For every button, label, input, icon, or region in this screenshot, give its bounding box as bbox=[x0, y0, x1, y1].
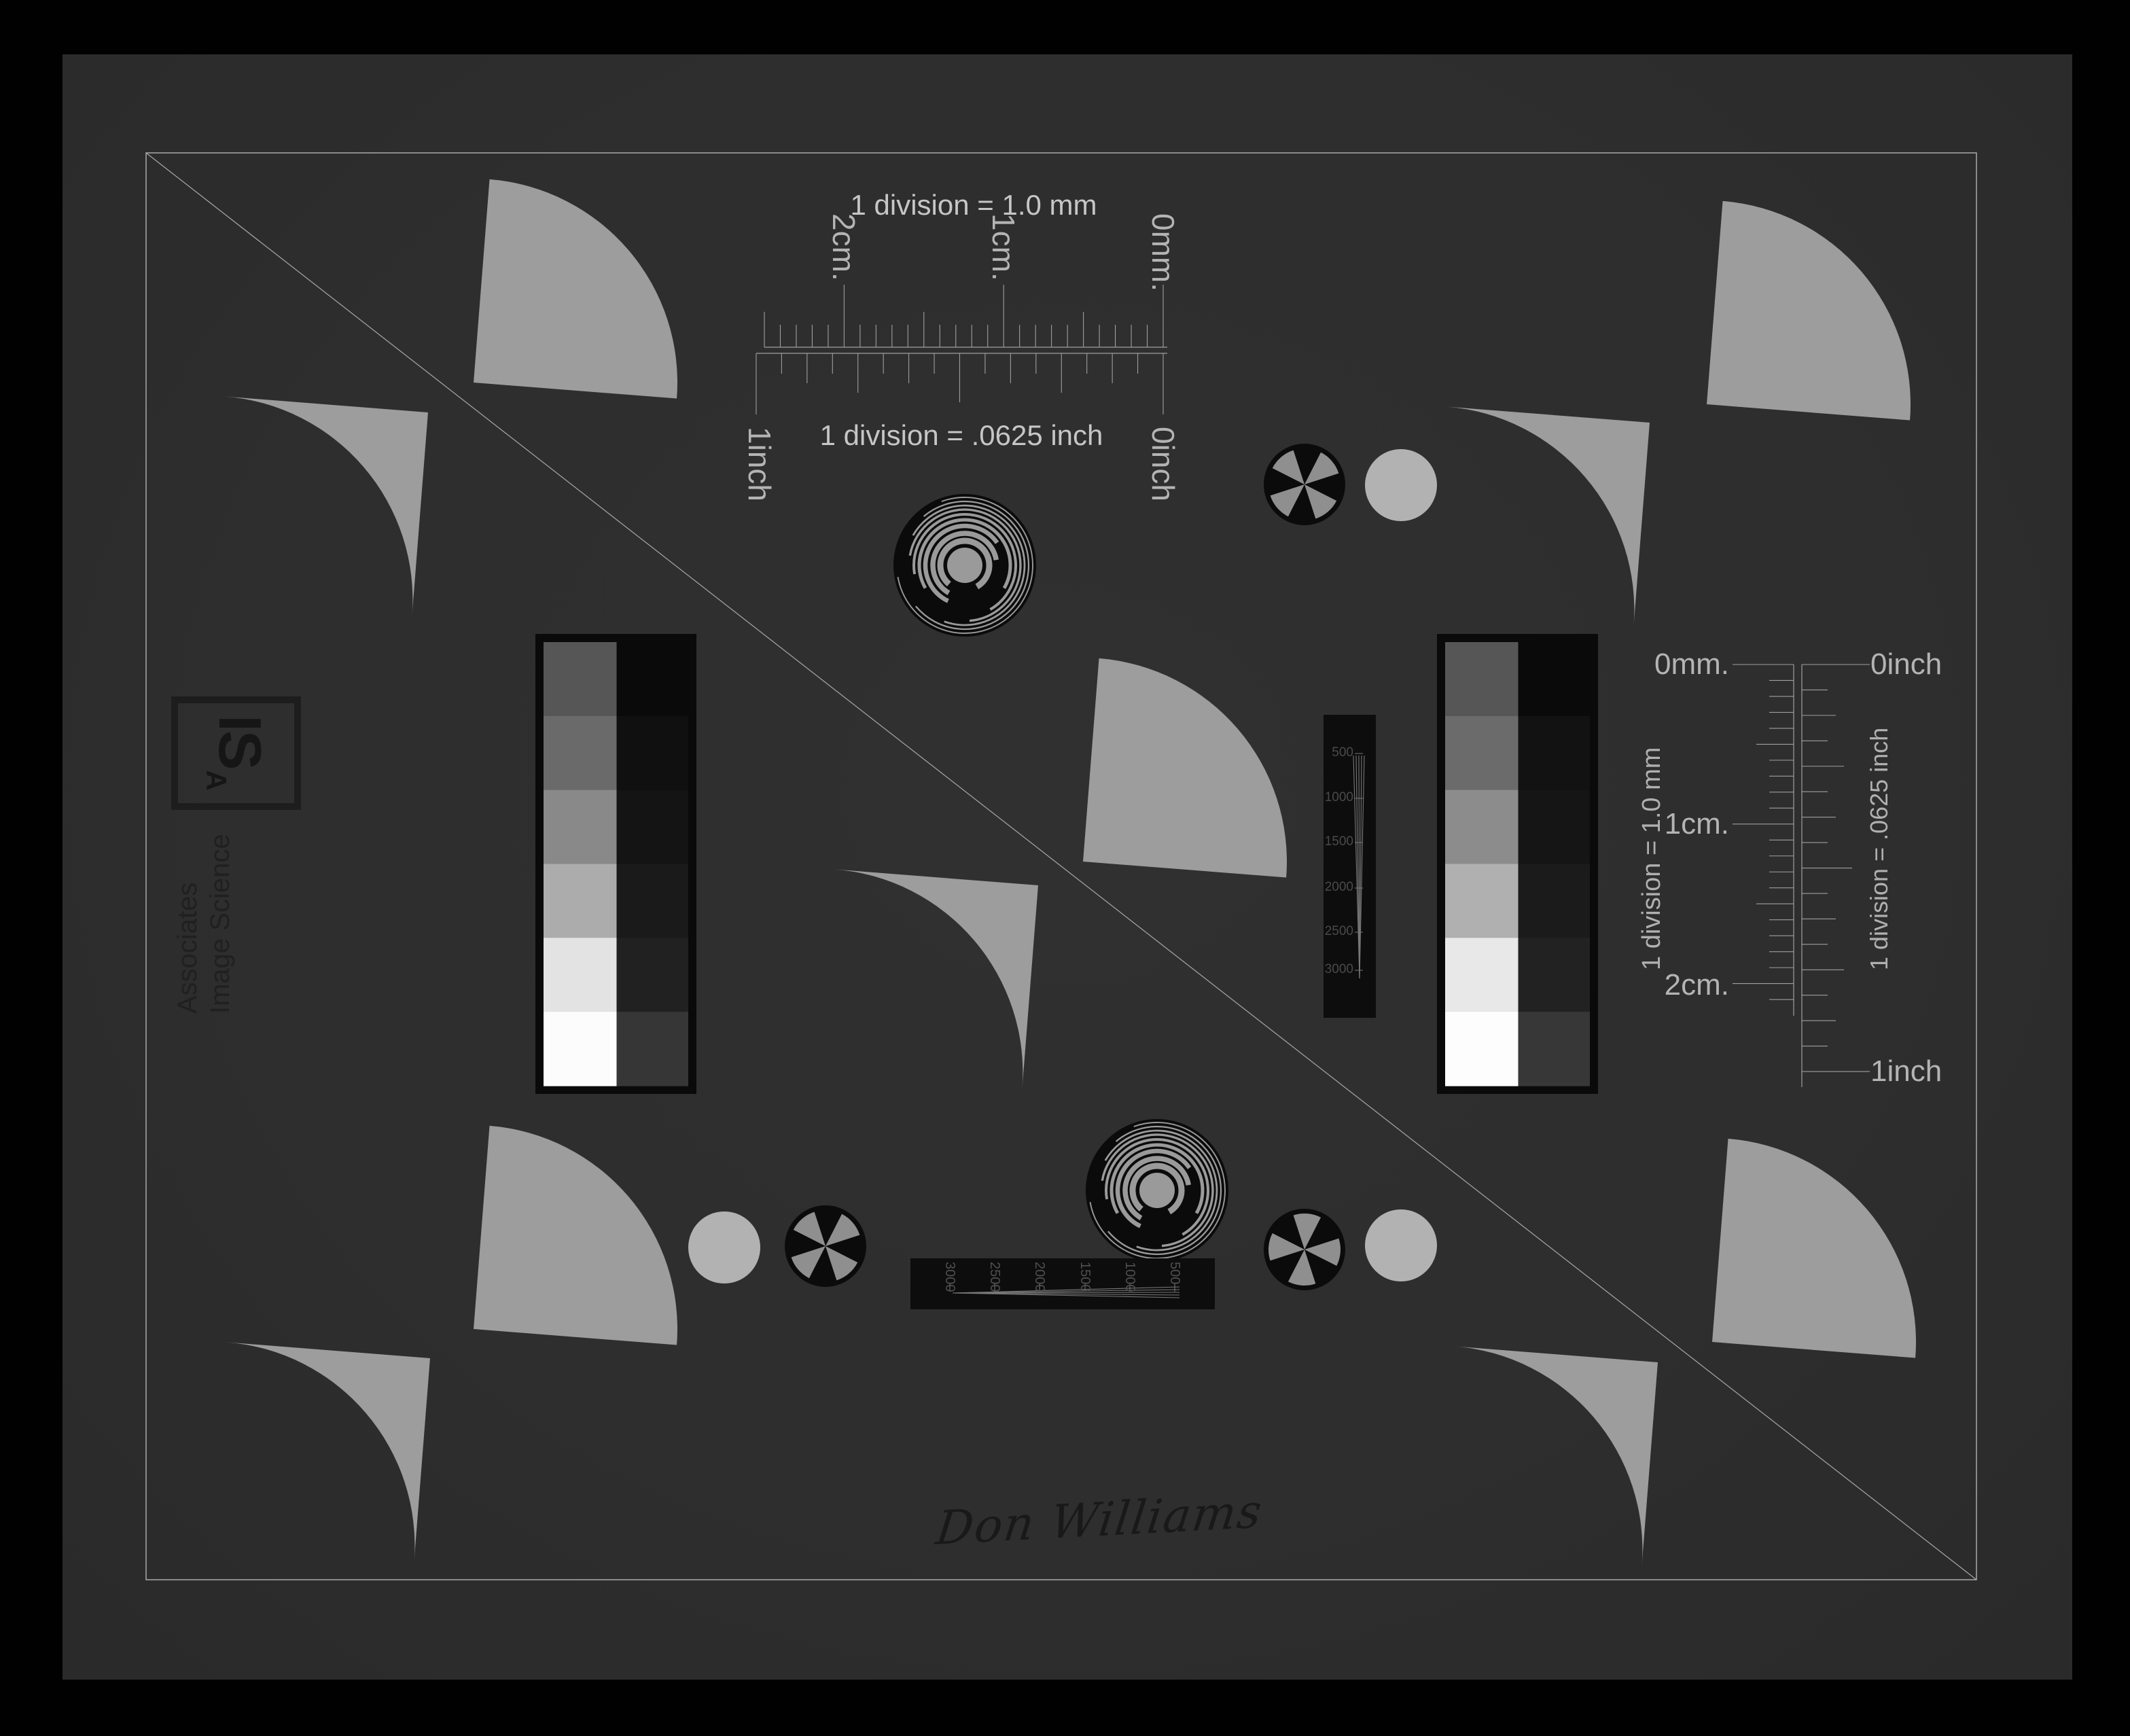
scanner-calibration-target: 1 division = 1.0 mm 1 division = .0625 i… bbox=[0, 0, 2130, 1736]
vwedge-label-500: 500 bbox=[1324, 746, 1353, 759]
isa-logo-text: IS bbox=[210, 715, 270, 768]
vwedge-label-3000: 3000 bbox=[1324, 963, 1353, 976]
vwedge-label-2000: 2000 bbox=[1324, 881, 1353, 893]
hwedge-label-500: 500 bbox=[1168, 1262, 1182, 1284]
org-name: Associates Image Science bbox=[171, 834, 236, 1014]
isa-logo: IS A bbox=[202, 715, 270, 791]
top-ruler-label-1cm: 1cm. bbox=[988, 213, 1019, 281]
right-ruler-label-0mm: 0mm. bbox=[1600, 650, 1729, 679]
top-ruler-label-0mm: 0mm. bbox=[1148, 213, 1179, 291]
vwedge-label-1000: 1000 bbox=[1324, 791, 1353, 804]
right-ruler-label-1inch: 1inch bbox=[1870, 1057, 1942, 1086]
hwedge-label-2000: 2000 bbox=[1033, 1262, 1046, 1292]
vwedge-label-1500: 1500 bbox=[1324, 835, 1353, 848]
top-inch-heading: 1 division = .0625 inch bbox=[758, 421, 1165, 450]
isa-logo-subtext: A bbox=[202, 770, 230, 790]
top-ruler-label-2cm: 2cm. bbox=[828, 213, 859, 281]
org-name-line-image-science: Image Science bbox=[204, 834, 236, 1014]
right-inch-heading: 1 division = .0625 inch bbox=[1867, 728, 1892, 970]
org-name-line-associates: Associates bbox=[171, 834, 204, 1014]
hwedge-label-3000: 3000 bbox=[943, 1262, 957, 1292]
hwedge-label-2500: 2500 bbox=[988, 1262, 1001, 1292]
right-ruler-label-0inch: 0inch bbox=[1870, 650, 1942, 679]
right-mm-heading: 1 division = 1.0 mm bbox=[1639, 747, 1665, 970]
hwedge-label-1000: 1000 bbox=[1123, 1262, 1137, 1292]
right-ruler-label-2cm: 2cm. bbox=[1600, 970, 1729, 1000]
top-ruler-label-0inch: 0inch bbox=[1148, 427, 1179, 501]
target-graphics bbox=[0, 0, 2130, 1736]
vwedge-label-2500: 2500 bbox=[1324, 925, 1353, 938]
top-ruler-label-1inch: 1inch bbox=[744, 427, 775, 501]
hwedge-label-1500: 1500 bbox=[1078, 1262, 1092, 1292]
